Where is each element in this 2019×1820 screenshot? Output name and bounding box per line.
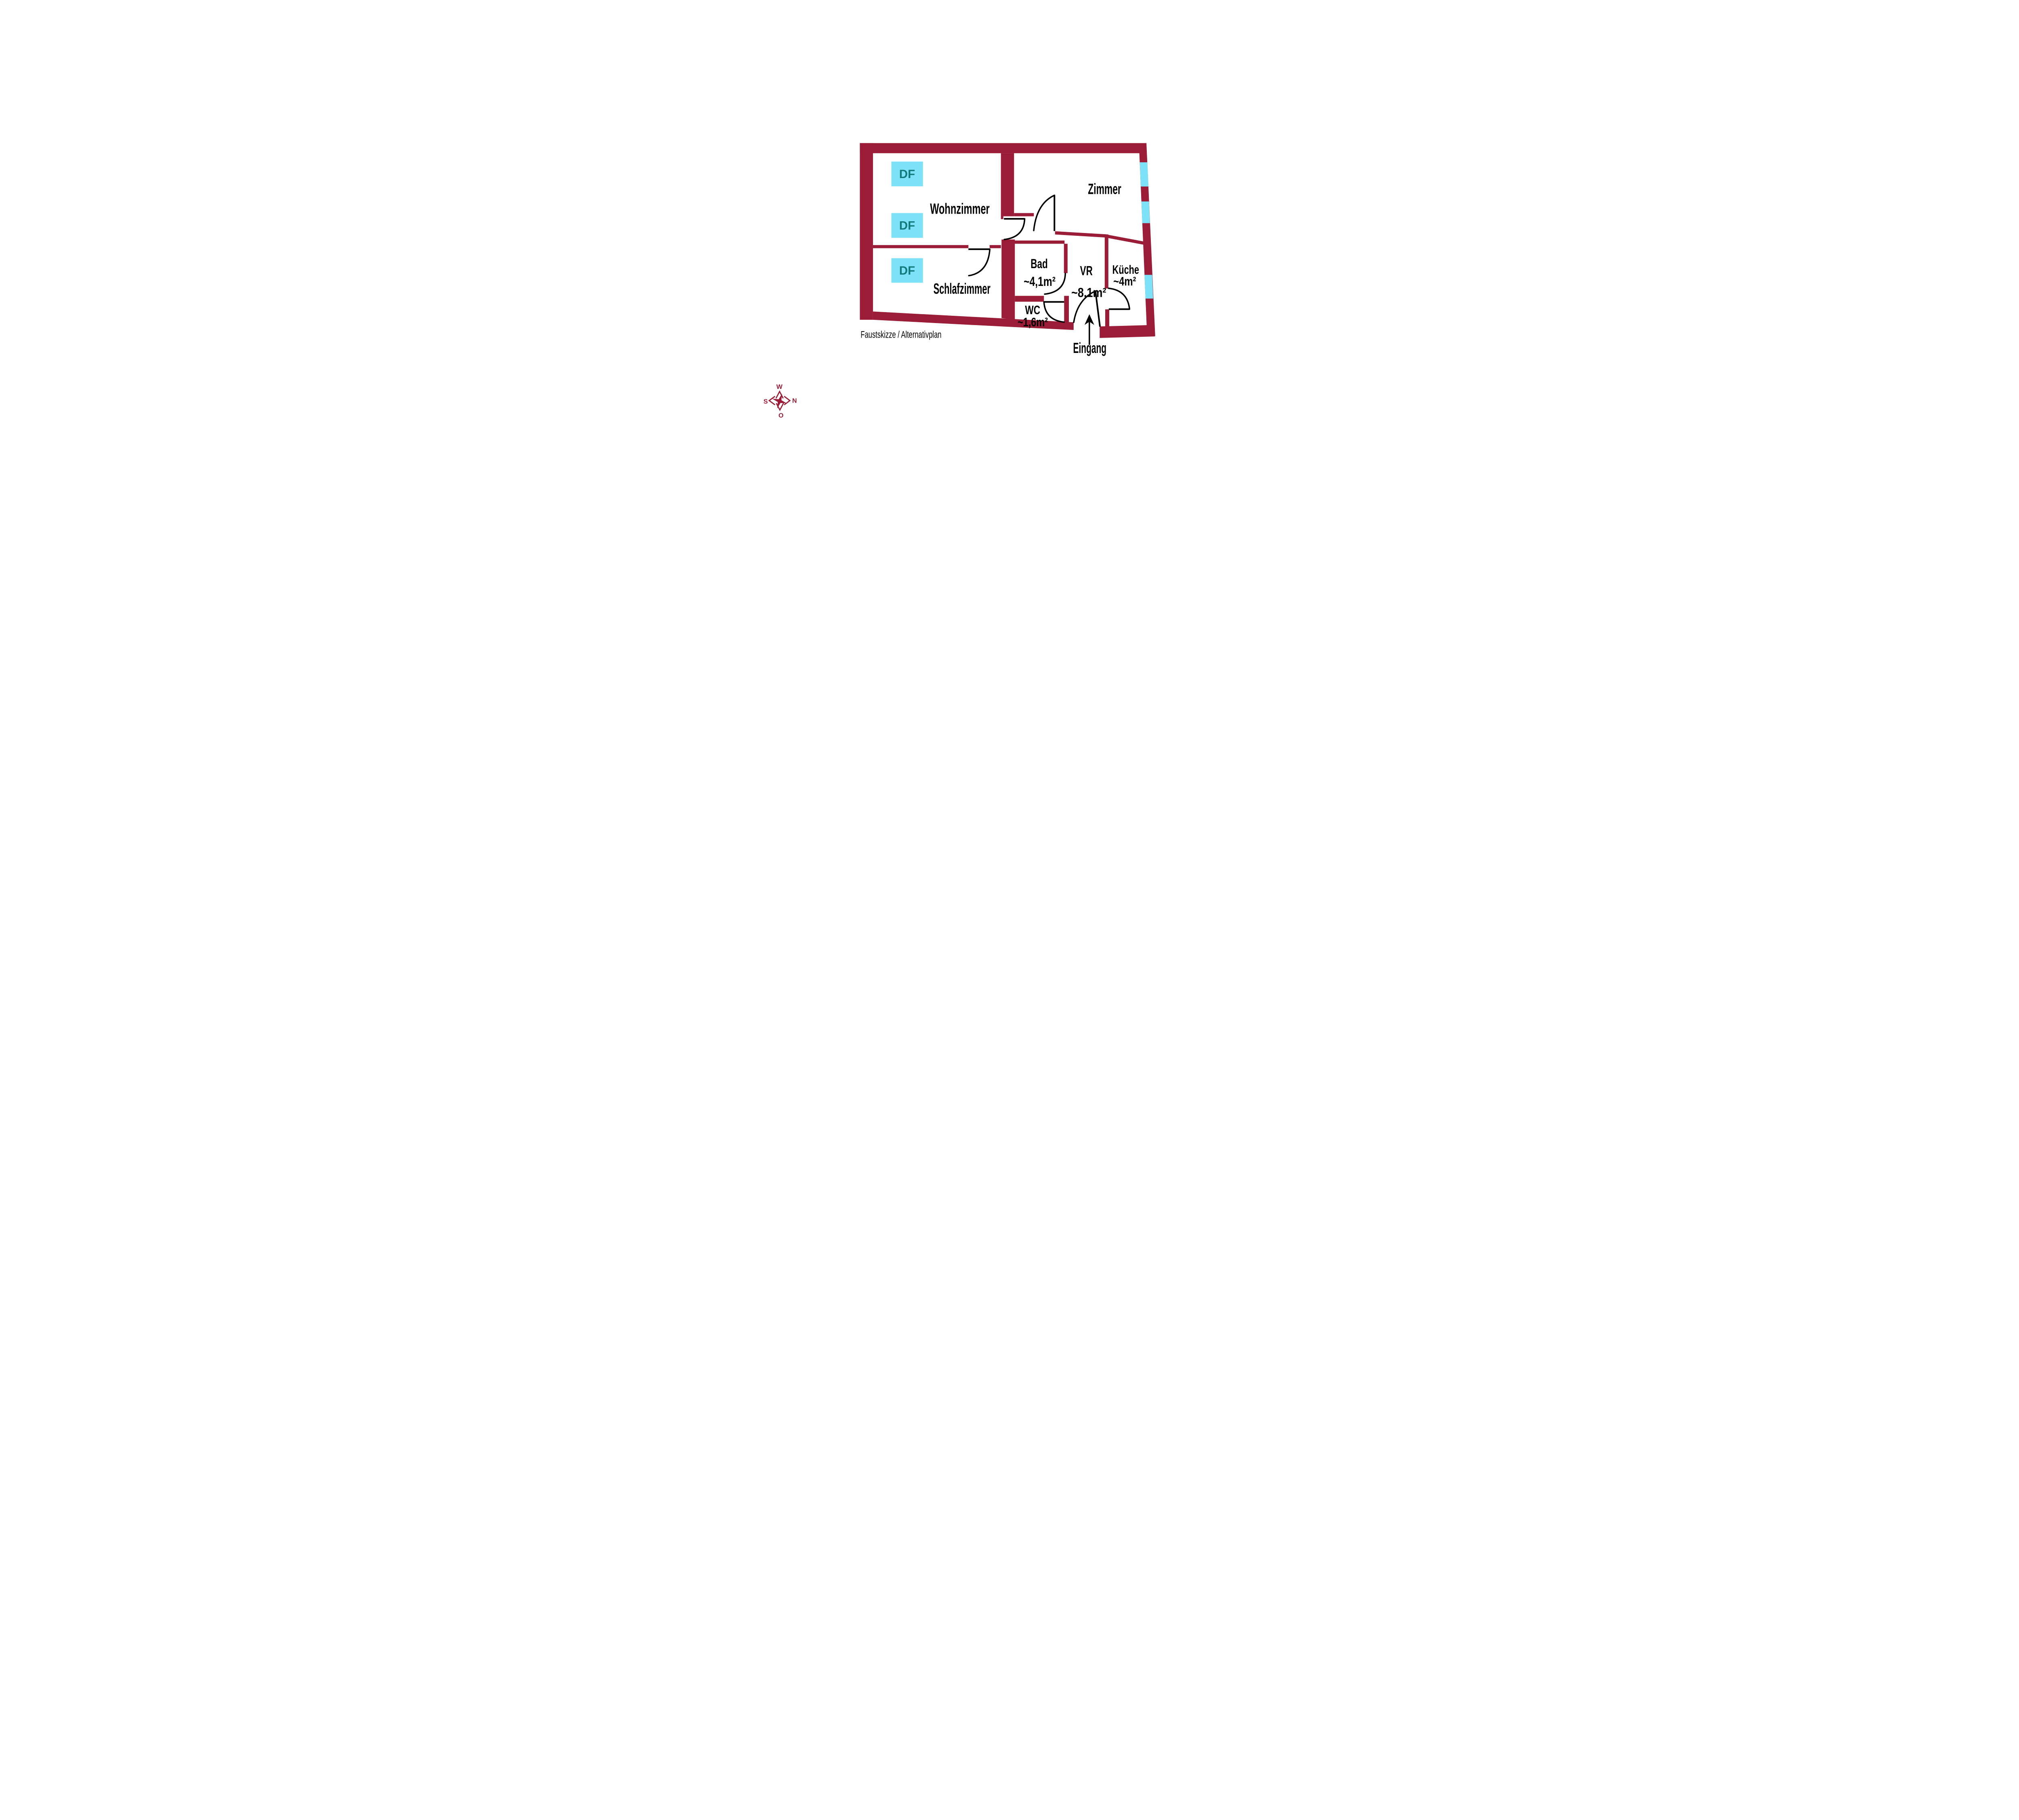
door-wohnzimmer-arc bbox=[1004, 219, 1025, 239]
window-zimmer-1 bbox=[1140, 162, 1149, 187]
door-zimmer-arc bbox=[1034, 195, 1054, 231]
label-wc-area: ~1,6m² bbox=[1018, 315, 1048, 329]
door-schlafzimmer-arc bbox=[969, 249, 990, 276]
wall-bad-right bbox=[1064, 244, 1068, 273]
compass-letter-left: S bbox=[764, 399, 768, 405]
df-label-2: DF bbox=[899, 219, 915, 232]
wall-left bbox=[860, 143, 873, 320]
compass-letter-right: N bbox=[792, 398, 797, 405]
compass-letter-bottom: O bbox=[779, 412, 783, 419]
label-eingang: Eingang bbox=[1073, 340, 1107, 356]
window-zimmer-2 bbox=[1142, 202, 1150, 223]
df-label-3: DF bbox=[899, 264, 915, 277]
window-kueche bbox=[1144, 275, 1153, 299]
compass-letter-top: W bbox=[777, 384, 783, 390]
wall-top bbox=[860, 143, 1146, 153]
wall-room-divider-left bbox=[873, 245, 968, 248]
label-wohnzimmer: Wohnzimmer bbox=[930, 200, 990, 217]
wall-bottom-right bbox=[1100, 325, 1154, 338]
wall-room-divider-stub bbox=[990, 245, 1001, 248]
df-label-1: DF bbox=[899, 168, 915, 181]
label-bad-area: ~4,1m² bbox=[1024, 274, 1056, 289]
floorplan-page: DF DF DF bbox=[726, 0, 1293, 455]
wall-entrance-right-jamb bbox=[1105, 309, 1109, 327]
door-kueche-arc bbox=[1108, 288, 1129, 309]
wall-mid-vertical-upper bbox=[1001, 153, 1014, 219]
wall-wc-top bbox=[1015, 296, 1044, 302]
compass-chevron-right-icon bbox=[785, 397, 790, 405]
door-schlafzimmer bbox=[968, 249, 990, 276]
door-wohnzimmer bbox=[1004, 219, 1024, 239]
label-vr: VR bbox=[1080, 263, 1093, 278]
compass-rose: W N S O bbox=[764, 384, 797, 419]
wall-zimmer-vr-kueche bbox=[1055, 231, 1144, 245]
plan-caption: Faustskizze / Alternativplan bbox=[860, 329, 941, 340]
wall-wc-right-jamb bbox=[1064, 296, 1069, 324]
roof-windows: DF DF DF bbox=[891, 162, 923, 283]
label-kueche-area: ~4m² bbox=[1113, 275, 1136, 288]
compass-chevron-up-icon bbox=[776, 391, 783, 398]
wall-mid-vertical-lower bbox=[1001, 239, 1015, 319]
wall-vr-kueche-divider bbox=[1105, 234, 1108, 288]
label-wc: WC bbox=[1025, 303, 1041, 317]
compass-star-icon bbox=[772, 394, 787, 409]
wall-bad-top bbox=[1015, 241, 1065, 244]
door-kueche bbox=[1108, 288, 1129, 309]
wall-vr-top-stub bbox=[1014, 213, 1034, 216]
label-zimmer: Zimmer bbox=[1088, 180, 1121, 197]
label-bad: Bad bbox=[1030, 256, 1048, 271]
label-schlafzimmer: Schlafzimmer bbox=[934, 280, 991, 297]
floorplan-canvas: DF DF DF bbox=[726, 0, 1293, 455]
label-vr-area: ~8,1m² bbox=[1071, 285, 1106, 300]
compass-chevron-left-icon bbox=[769, 397, 774, 405]
door-zimmer bbox=[1034, 195, 1054, 231]
